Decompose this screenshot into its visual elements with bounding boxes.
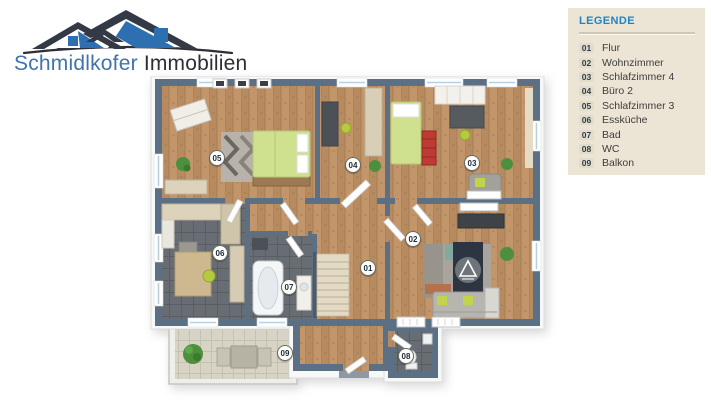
- balcony-plant-icon: [183, 344, 203, 364]
- fridge: [162, 220, 174, 248]
- staircase: [317, 254, 349, 316]
- legend-item-02: 02Wohnzimmer: [579, 55, 695, 69]
- shelf-unit: [365, 88, 382, 156]
- room-badge-07: 07: [281, 279, 297, 295]
- room-badge-09: 09: [277, 345, 293, 361]
- legend-item-label: Schlafzimmer 4: [602, 71, 674, 83]
- shelf: [252, 238, 268, 250]
- legend-item-label: Wohnzimmer: [602, 57, 664, 69]
- legend-item-label: Essküche: [602, 114, 648, 126]
- sideboard: [165, 180, 207, 194]
- room-badge-06: 06: [212, 245, 228, 261]
- company-logo: Schmidlkofer Immobilien: [8, 2, 248, 80]
- single-bed: [391, 102, 421, 164]
- legend-item-label: WC: [602, 143, 620, 155]
- vanity-sink: [297, 276, 311, 310]
- room-badge-01: 01: [360, 260, 376, 276]
- company-name-secondary: Immobilien: [144, 52, 248, 75]
- plant-icon: [501, 158, 513, 170]
- tv-board: [458, 214, 504, 228]
- legend-item-04: 04Büro 2: [579, 84, 695, 98]
- legend-item-number: 08: [579, 144, 594, 154]
- legend-item-03: 03Schlafzimmer 4: [579, 70, 695, 84]
- legend-divider: [579, 32, 695, 35]
- legend-item-number: 07: [579, 130, 594, 140]
- room-badge-05: 05: [209, 150, 225, 166]
- legend-item-number: 03: [579, 72, 594, 82]
- legend-item-number: 02: [579, 58, 594, 68]
- company-name-primary: Schmidlkofer: [14, 52, 138, 75]
- room-badge-08: 08: [398, 348, 414, 364]
- wc-basin: [423, 334, 432, 344]
- legend-item-label: Balkon: [602, 157, 634, 169]
- plant-icon: [369, 160, 381, 172]
- legend-item-number: 09: [579, 158, 594, 168]
- legend-item-05: 05Schlafzimmer 3: [579, 99, 695, 113]
- page: { "brand": { "name_primary": "Schmidlkof…: [0, 0, 711, 400]
- entrance-hall: [293, 326, 390, 378]
- floorplan: 05 04 03 02 01 06 07 08 09: [145, 76, 565, 394]
- bathtub: [253, 261, 283, 315]
- legend-item-07: 07Bad: [579, 127, 695, 141]
- room-badge-04: 04: [345, 157, 361, 173]
- legend-item-label: Büro 2: [602, 85, 633, 97]
- radiator: [460, 203, 498, 211]
- floorplan-image: [145, 76, 565, 394]
- legend-item-06: 06Essküche: [579, 113, 695, 127]
- legend-item-label: Schlafzimmer 3: [602, 100, 674, 112]
- radiator: [467, 191, 501, 199]
- wall-units: [213, 79, 271, 88]
- zigzag-rug: [221, 132, 255, 182]
- legend-item-01: 01Flur: [579, 41, 695, 55]
- corridor-flur: [313, 252, 349, 318]
- legend-item-label: Flur: [602, 42, 620, 54]
- room-badge-03: 03: [464, 155, 480, 171]
- legend-item-number: 04: [579, 86, 594, 96]
- watermark-logo: [455, 257, 481, 283]
- curtain: [525, 88, 533, 168]
- chair: [460, 130, 470, 140]
- roofs-icon: [8, 2, 248, 58]
- sofa: [433, 288, 499, 318]
- dresser: [450, 106, 484, 128]
- balcony-table-and-chairs: [217, 346, 271, 368]
- legend-item-08: 08WC: [579, 142, 695, 156]
- double-bed: [253, 131, 310, 186]
- legend-item-label: Bad: [602, 129, 621, 141]
- office-chair: [341, 123, 351, 133]
- side-counter: [230, 246, 244, 302]
- desk-cabinet: [322, 102, 338, 146]
- room-badge-02: 02: [405, 231, 421, 247]
- legend-panel: LEGENDE 01Flur 02Wohnzimmer 03Schlafzimm…: [568, 8, 705, 175]
- legend-title: LEGENDE: [579, 15, 695, 27]
- legend-item-09: 09Balkon: [579, 156, 695, 170]
- legend-item-number: 06: [579, 115, 594, 125]
- legend-item-number: 05: [579, 101, 594, 111]
- legend-item-number: 01: [579, 43, 594, 53]
- company-name: Schmidlkofer Immobilien: [14, 52, 247, 76]
- doormat: [339, 371, 369, 378]
- plant-icon: [500, 247, 514, 261]
